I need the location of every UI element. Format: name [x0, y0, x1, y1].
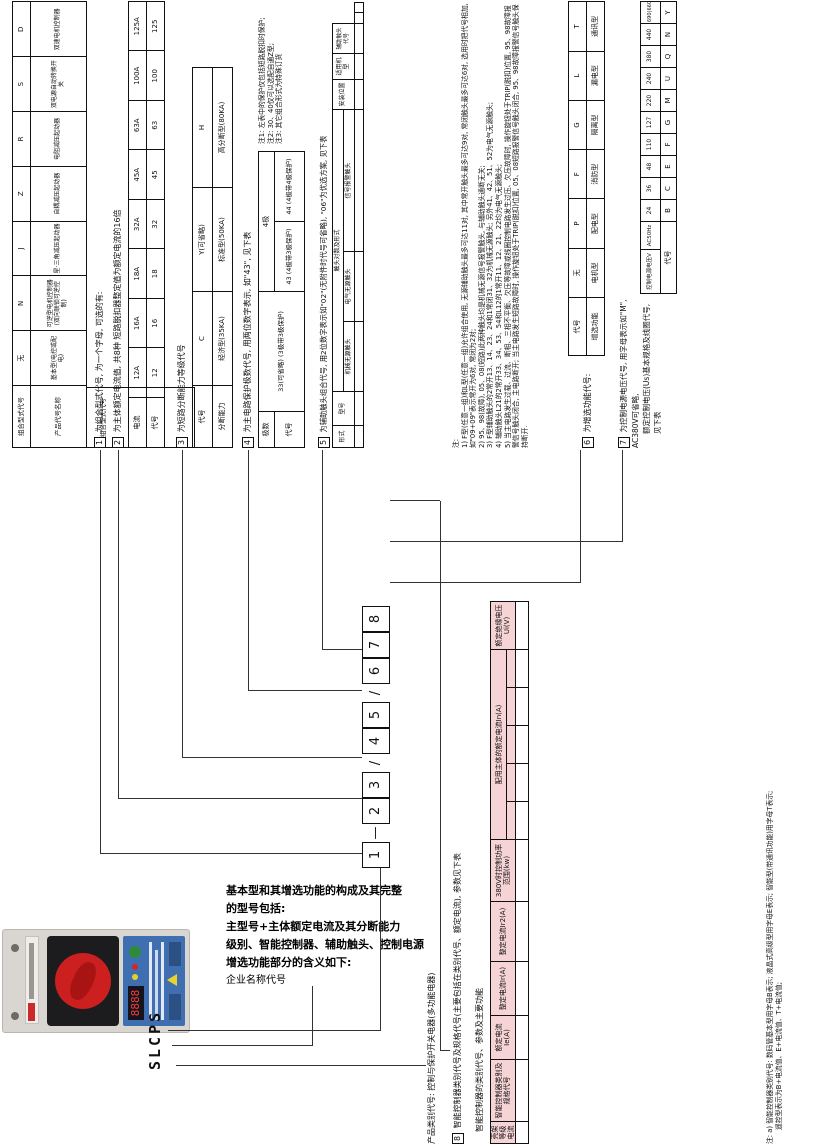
s2-row1-label: 电流 [129, 398, 147, 448]
photo-screw-top2-icon [11, 944, 19, 952]
s5-h-alarm: 信号报警触头 [344, 109, 355, 251]
connector-line [100, 450, 101, 854]
spec-header-cell: 配用主体的额定电流In(A) [491, 649, 507, 839]
s3-ability: 标准型(50KA) [213, 188, 233, 292]
section4-note-line: 注3: 其它组合形式为特殊订货 [275, 0, 284, 144]
s2-code: 12 [147, 348, 165, 398]
s7-code: U [661, 68, 677, 90]
section4-number-box: 4 [242, 437, 254, 448]
s7-code: Y [661, 2, 677, 24]
s6-row2-label: 增选功能 [587, 298, 605, 356]
s1-code: Z [13, 166, 31, 221]
spec-header-subcell [507, 649, 516, 687]
section7-number-box: 7 [618, 437, 630, 448]
spec-row [516, 601, 529, 1143]
section8-caption-text: 智能控制器类别代号及规格代号(主要包括在类别代号、额定电流), 参数见下表 [453, 853, 462, 1128]
spec-cell [516, 962, 529, 1016]
s2-code: 125 [147, 2, 165, 52]
s3-row2-label: 分断能力 [213, 386, 233, 448]
connector-line [100, 853, 362, 854]
section1-caption: 1 为组合型式代号, 为一个字母, 可选的有: [94, 291, 106, 448]
section1-table-grid: 组合型式代号 无 N J Z R S D 产品代号名称 基本型(电控或配电) 可… [12, 1, 87, 448]
s1-code: R [13, 112, 31, 167]
s1-code: J [13, 221, 31, 276]
spec-header-cell: 380V时控制功率范围(kw) [491, 840, 516, 902]
s5-h-apply: 适用机型 [333, 53, 355, 79]
section2-number-box: 2 [112, 437, 124, 448]
spec-cell [516, 764, 529, 802]
section6-caption: 6 为增选功能代号: [582, 374, 594, 448]
model-position: — [363, 824, 389, 842]
s5-h-form: 形式 [333, 426, 355, 448]
connector-line [168, 1030, 380, 1031]
spec-header-cell: 整定电流Ir(A) [491, 962, 516, 1016]
s7-voltage: 220 [641, 90, 661, 112]
connector-line [322, 649, 362, 650]
s6-function: 配电型 [587, 199, 605, 248]
s7-code: E [661, 156, 677, 178]
s1-name: 星·三角减压起动器 [31, 221, 87, 276]
s3-code: H [193, 68, 213, 188]
s4-code-label: 代号 [275, 412, 305, 448]
s3-ability: 高分断型(80KA) [213, 68, 233, 188]
s1-code: 无 [13, 331, 31, 386]
note-item: 1) F型(任意一组)和L型(任意一组)允许组合使用, 无源辅助触头最多可达11… [461, 0, 478, 448]
s5-cell [355, 322, 364, 392]
model-position: 1 [362, 842, 390, 868]
connector-line [312, 986, 313, 1046]
s7-code: C [661, 178, 677, 200]
green-label-icon [129, 946, 141, 958]
section3-number-box: 3 [176, 437, 188, 448]
s2-code: 45 [147, 150, 165, 200]
s7-voltage: 110 [641, 134, 661, 156]
s1-code: D [13, 2, 31, 57]
connector-line [390, 500, 440, 501]
s2-code: 32 [147, 200, 165, 250]
s4-poles-label: 极数 [259, 412, 275, 448]
s7-voltage: 240 [641, 68, 661, 90]
model-position: 6 [362, 658, 390, 684]
s6-function: 电机型 [587, 248, 605, 297]
connector-line [622, 450, 623, 542]
s7-freq: AC50Hz [641, 222, 661, 250]
s5-cell [355, 13, 364, 23]
connector-line [248, 690, 362, 691]
connector-line [172, 1045, 312, 1046]
connector-line [322, 450, 323, 650]
notes-title: 注: [452, 0, 461, 448]
section6-number-box: 6 [582, 437, 594, 448]
s7-code: B [661, 200, 677, 222]
s5-cell [355, 426, 364, 448]
section4-table: 极数 33(可省略) (3极带3极保护) 4极 代号 43 (4极带3极保护) … [258, 151, 305, 448]
spec-header-cell: 智能控制器类别及规格代号 [491, 1060, 516, 1122]
s1-name: 自耦减压起动器 [31, 166, 87, 221]
s6-code: T [569, 2, 587, 51]
model-number-row: 1—23/45/678 [362, 606, 390, 868]
connector-line [390, 541, 622, 542]
model-position: 3 [362, 772, 390, 798]
note-item: 4) 辅助触头L21的2常开33、34、53、54和L12的1常开11、12、2… [495, 0, 504, 448]
model-position: 8 [362, 606, 390, 632]
s2-current: 18A [129, 249, 147, 299]
model-position: 7 [362, 632, 390, 658]
spec-header-cell: 额定电流Ie(A) [491, 1016, 516, 1060]
s5-cell [355, 79, 364, 109]
s3-code: Y(可省略) [193, 188, 213, 292]
photo-screw-top-icon [11, 1012, 19, 1020]
spec-cell [516, 1122, 529, 1144]
s5-h-pairs: 触头对数及形式 [333, 109, 344, 391]
s5-cell [355, 109, 364, 251]
spec-table-note: 注: a) 智能控制器类别代号: 数码管基本型用字母B表示; 液晶式高级型用字母… [766, 564, 783, 1144]
s2-code: 18 [147, 249, 165, 299]
note-item: 5) 当主电路发生过载、过流、断相、三相不平衡、欠压等故障或线圈控制电路发生过压… [504, 0, 530, 448]
s5-cell [355, 392, 364, 426]
s1-row1-label: 组合型式代号 [13, 386, 31, 448]
spec-header-cell: 壳架等级电流 [491, 1122, 516, 1144]
section5-table: 形式 型号 触头对数及形式 安装位置 适用机型 辅助触头代号 机械无源触头 电气… [332, 2, 364, 448]
s5-cell [355, 252, 364, 322]
s2-current: 125A [129, 2, 147, 52]
s2-code: 100 [147, 51, 165, 101]
s5-h-mech: 机械无源触头 [344, 322, 355, 392]
section4-notes: 注1: 左表中的保护仅包括短路脱扣时保护;注2: 30、40仅可以选配自通Z型;… [258, 0, 284, 144]
s7-code: G [661, 112, 677, 134]
s2-row2-label: 代号 [147, 398, 165, 448]
connector-line [580, 450, 581, 583]
s7-voltage: 48 [641, 156, 661, 178]
status-led2-icon [132, 964, 138, 970]
brand-model-text: SLCPS [146, 1010, 164, 1070]
s6-function: 漏电型 [587, 51, 605, 100]
s7-voltage: 36 [641, 178, 661, 200]
section4-caption: 4 为主电路保护极数代号, 用两位数字表示, 如"43", 见下表 [242, 232, 254, 448]
spec-cell [516, 1060, 529, 1122]
section5-number-box: 5 [318, 437, 330, 448]
connector-line [118, 450, 119, 799]
note-item: 3) F型辅助触头的2常开13、14、23、24和1常闭31、32为机械无源触头… [486, 0, 495, 448]
connector-line [390, 582, 580, 583]
s7-row2-label: 代号 [661, 222, 677, 294]
model-position: 2 [362, 798, 390, 824]
seven-segment-display: 8888 [128, 986, 144, 1020]
s5-h-model: 型号 [333, 392, 355, 426]
s3-ability: 经济型(35KA) [213, 292, 233, 386]
section4-note-line: 注2: 30、40仅可以选配自通Z型; [267, 0, 276, 144]
s6-row1-label: 代号 [569, 298, 587, 356]
spec-header-subcell [507, 688, 516, 726]
connector-line [182, 757, 362, 758]
section2-caption: 2 为主体额定电流值, 共8种 短路脱扣器整定值为额定电流的16倍 [112, 209, 124, 448]
model-position: 5 [362, 702, 390, 728]
section1-number-box: 1 [94, 437, 106, 448]
spec-cell [516, 726, 529, 764]
s7-voltage: 24 [641, 200, 661, 222]
aux-contact-notes: 注: 1) F型(任意一组)和L型(任意一组)允许组合使用, 无源辅助触头最多可… [452, 0, 529, 448]
section3-table: 代号 C Y(可省略) H 分断能力 经济型(35KA) 标准型(50KA) 高… [192, 67, 233, 448]
s6-code: 无 [569, 248, 587, 297]
s1-name: 可逆型电机控制器(双向联锁可逆控制) [31, 276, 87, 331]
s3-row1-label: 代号 [193, 386, 213, 448]
s6-function: 通讯型 [587, 2, 605, 51]
section3-caption: 3 为短路分断能力等级代号 [176, 344, 188, 448]
s1-code: N [13, 276, 31, 331]
s2-current: 100A [129, 51, 147, 101]
s5-h-elec: 电气无源触头 [344, 252, 355, 322]
connector-line [248, 450, 249, 691]
s6-code: P [569, 199, 587, 248]
s1-name: 双速电机控制器 [31, 2, 87, 57]
s7-code: Q [661, 46, 677, 68]
section5-caption: 5 为辅助触头组合代号, 用2位数字表示如"02"(无附件时代号可省略), "0… [318, 136, 330, 448]
s2-current: 12A [129, 348, 147, 398]
s6-code: F [569, 150, 587, 199]
model-position: / [363, 754, 389, 772]
s4-cell-43: 43 (4极带3极保护) [275, 222, 305, 292]
connector-line [176, 1065, 426, 1066]
s7-code: M [661, 90, 677, 112]
catalog-page: 8888 基本型和其增选功能的构成及其完整 的型号包括: 主型号+主体额定电流及… [0, 0, 820, 1146]
section7-caption: 7 为控制电源电压代号, 用字母表示如"M", AC380V可省略, 额定控制电… [618, 298, 663, 448]
s7-code: F [661, 134, 677, 156]
section7-table: 控制电源电压V AC50Hz 24 36 48 110 127 220 240 … [640, 1, 677, 294]
s7-voltage: 380 [641, 46, 661, 68]
spec-cell [516, 1016, 529, 1060]
s4-cell-44: 44 (4极带4极保护) [275, 152, 305, 222]
spec-cell [516, 802, 529, 840]
s1-row2-label: 产品代号名称 [31, 386, 87, 448]
s5-h-pos: 安装位置 [333, 79, 355, 109]
spec-header-subcell [507, 802, 516, 840]
connector-line [182, 450, 183, 758]
s1-name: 双电源自动转换开关 [31, 57, 87, 112]
s1-code: S [13, 57, 31, 112]
s6-code: G [569, 100, 587, 149]
s5-h-code: 辅助触头代号 [333, 23, 355, 53]
spec-header-row1: 壳架等级电流智能控制器类别及规格代号额定电流Ie(A)整定电流Ir(A)整定电流… [491, 601, 507, 1143]
s6-function: 隔离型 [587, 100, 605, 149]
connector-line [440, 1050, 450, 1051]
status-led-icon [132, 974, 138, 980]
knob-panel [47, 936, 119, 1026]
s1-name: 电阻减压起动器 [31, 112, 87, 167]
connector-line [118, 798, 362, 799]
s7-row1-label: 控制电源电压V [641, 250, 661, 294]
s7-code: N [661, 24, 677, 46]
s6-code: L [569, 51, 587, 100]
spec-header-cell: 整定电流Ir2(A) [491, 902, 516, 962]
s1-name: 基本型(电控或配电) [31, 331, 87, 386]
section8-number-box: 8 [452, 1133, 464, 1144]
section8-caption: 8 智能控制器类别代号及规格代号(主要包括在类别代号、额定电流), 参数见下表 [452, 853, 464, 1144]
big-table-title: 智能控制器的类别代号、参数及主要功能 [474, 988, 485, 1132]
spec-cell [516, 688, 529, 726]
s7-voltage: 127 [641, 112, 661, 134]
spec-cell [516, 649, 529, 687]
spec-cell [516, 601, 529, 649]
s2-current: 45A [129, 150, 147, 200]
warning-triangle-icon [167, 974, 177, 986]
s6-function: 消防型 [587, 150, 605, 199]
connector-line [380, 868, 381, 1031]
rotated-document-viewport: 8888 基本型和其增选功能的构成及其完整 的型号包括: 主型号+主体额定电流及… [0, 0, 820, 1146]
s4-cell-33: 33(可省略) (3极带3极保护) [259, 292, 305, 412]
s7-voltage: 440 [641, 24, 661, 46]
s3-code: C [193, 292, 213, 386]
model-position: 4 [362, 728, 390, 754]
s4-cell-4p: 4极 [259, 152, 275, 292]
model-position: / [363, 684, 389, 702]
spec-header-cell: 额定绝缘电压Ui(V) [491, 601, 516, 649]
spec-cell [516, 840, 529, 902]
s2-current: 32A [129, 200, 147, 250]
s5-cell [355, 3, 364, 14]
s5-cell [355, 23, 364, 53]
spec-cell [516, 902, 529, 962]
section4-note-line: 注1: 左表中的保护仅包括短路脱扣时保护; [258, 0, 267, 144]
s5-row [355, 3, 364, 448]
s2-code: 16 [147, 299, 165, 349]
photo-brand-strip [25, 936, 39, 1024]
s2-current: 63A [129, 101, 147, 151]
section2-table: 电流 12A 16A 18A 32A 45A 63A 100A 125A 代号 … [128, 1, 165, 448]
spec-table: 壳架等级电流智能控制器类别及规格代号额定电流Ie(A)整定电流Ir(A)整定电流… [490, 601, 529, 1144]
section6-table: 代号 无 P F G L T 增选功能 电机型 配电型 消防型 隔离型 漏电型 … [568, 1, 605, 356]
s2-code: 63 [147, 101, 165, 151]
product-class-caption: 产品类别代号: 控制与保护开关电器(多功能电器) [426, 973, 437, 1144]
spec-header-subcell [507, 764, 516, 802]
s5-cell [355, 53, 364, 79]
s2-current: 16A [129, 299, 147, 349]
s7-voltage: 690(660) [641, 2, 661, 24]
spec-header-subcell [507, 726, 516, 764]
connector-line [440, 501, 441, 1051]
